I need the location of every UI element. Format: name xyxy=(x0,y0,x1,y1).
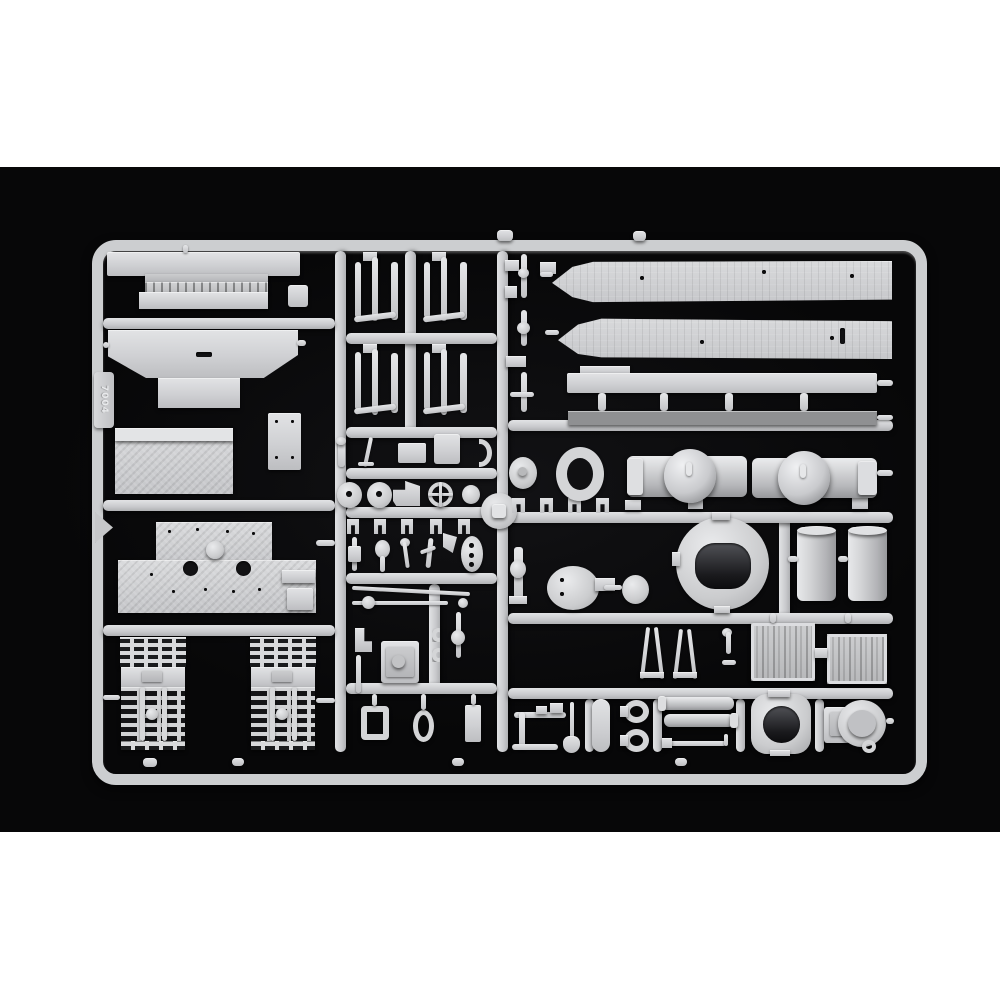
exhaust-pipe-1 xyxy=(660,697,734,710)
idler-dimple xyxy=(518,467,527,476)
loader-hatch-tab-top xyxy=(768,690,790,697)
deck-ledge xyxy=(282,570,315,583)
fuel-tank-1-stub xyxy=(788,556,798,562)
rail-h-mid-2 xyxy=(346,427,497,438)
pad-r-3 xyxy=(852,497,868,509)
rail-h-left-3 xyxy=(103,625,335,636)
tall-plate-stem xyxy=(471,694,476,705)
exhaust-pipe-2-cap xyxy=(730,713,738,728)
leaf-hole-2 xyxy=(469,553,474,558)
square-frame-stem xyxy=(372,694,377,706)
a-frame-2-base xyxy=(673,672,697,678)
ring-clamp-1-tab xyxy=(620,706,628,717)
rod-collar xyxy=(362,596,375,609)
grille-right-bar-2 xyxy=(292,687,297,741)
col-bit-1 xyxy=(505,260,519,271)
turret-ring-notch xyxy=(672,552,680,566)
skirt-post-2 xyxy=(660,393,668,411)
pad-r-1 xyxy=(625,500,641,510)
rail-h-mid-3 xyxy=(346,468,497,479)
tow-rod-end-2 xyxy=(724,734,728,746)
turret-ring-tab-bottom xyxy=(714,606,730,613)
barrel-ball-1-pin xyxy=(686,462,692,476)
barrel-collar-1 xyxy=(627,458,643,495)
rod-tip xyxy=(458,598,468,608)
pulley-hub xyxy=(492,504,506,518)
exhaust-pipe-2 xyxy=(664,714,734,727)
turret-ring-hole xyxy=(695,543,751,589)
deck-rivet-3 xyxy=(226,530,229,533)
barrel-muzzle-step xyxy=(858,461,877,495)
grille-right-bar-1 xyxy=(270,687,275,741)
hull-rear-hinge xyxy=(145,282,268,292)
bottom-rail-nub-3 xyxy=(452,758,464,766)
fuel-tank-2-stub xyxy=(838,556,848,562)
grille-left-latch xyxy=(142,671,162,682)
shovel-handle xyxy=(570,702,574,740)
bottom-rail-nub-4 xyxy=(675,758,687,766)
door-rivet-2 xyxy=(291,420,294,423)
loader-hatch-tab-bottom xyxy=(770,750,790,756)
shovel-blade xyxy=(563,736,580,753)
rail-h-right-3 xyxy=(508,613,893,624)
turret-ring-tab-top xyxy=(712,512,730,520)
long-rod-tl-1 xyxy=(355,262,361,318)
fender-left-dot-1 xyxy=(640,276,644,280)
wheel-hub-2-dot xyxy=(376,491,382,497)
rail-h-mid-4 xyxy=(346,507,497,518)
rail-v-2 xyxy=(405,251,416,438)
deck-rivet-5 xyxy=(150,573,153,576)
fuel-tank-2 xyxy=(848,527,887,601)
gate-stub-9 xyxy=(877,470,893,476)
fuel-tank-1-rim xyxy=(797,526,836,535)
cupola-inner-disc xyxy=(848,710,876,737)
large-ring xyxy=(556,447,604,501)
leaf-hole-1 xyxy=(469,543,474,548)
gate-stub-3 xyxy=(103,695,120,700)
long-rod-tm-1 xyxy=(424,262,430,318)
small-box-1 xyxy=(398,443,426,463)
fender-left xyxy=(552,261,892,303)
deck-rivet-6 xyxy=(172,590,175,593)
hull-rear-plate xyxy=(107,252,300,276)
small-hub xyxy=(462,485,480,504)
turnbuckle-body xyxy=(348,546,361,562)
fuel-tank-2-rim xyxy=(848,526,887,535)
gate-stub-7 xyxy=(877,380,893,386)
cast-box-top-band xyxy=(115,428,233,441)
barrel-ball-2 xyxy=(778,451,830,505)
antenna-tip xyxy=(336,437,346,445)
grille-left-bar-2 xyxy=(162,687,167,741)
col-bit-5 xyxy=(505,286,517,298)
gate-stub-5 xyxy=(540,272,553,277)
deck-rivet-2 xyxy=(196,528,199,531)
bottom-rail-nub-1 xyxy=(143,758,157,767)
gate-stub-10 xyxy=(886,718,894,724)
tall-plate xyxy=(465,705,481,742)
gate-stub-4 xyxy=(316,698,335,703)
oval-ring-stem xyxy=(421,694,426,710)
s-lever-foot xyxy=(358,462,374,466)
barrel-ball-1 xyxy=(664,449,716,503)
commander-hatch-disc xyxy=(547,566,599,610)
stowage-pad xyxy=(815,648,827,658)
periscope-bulge xyxy=(510,560,526,578)
hull-rear-flap xyxy=(139,292,268,309)
hook-part-2 xyxy=(726,632,731,654)
rail-v-9 xyxy=(815,699,824,752)
skirt-edge-strip xyxy=(568,411,877,425)
barrel-ball-2-pin xyxy=(800,464,806,478)
hull-rear-mid-strip xyxy=(145,274,268,282)
square-frame xyxy=(361,706,389,740)
top-rail-nub-2 xyxy=(633,231,646,241)
toolbox-latch xyxy=(392,655,405,668)
skirt-post-4 xyxy=(800,393,808,411)
gate-stub-6 xyxy=(545,330,559,335)
stowage-box-1-stem xyxy=(770,613,776,623)
bottom-rail-nub-2 xyxy=(232,758,244,766)
rail-h-mid-1 xyxy=(346,333,497,344)
skirt-post-3 xyxy=(725,393,733,411)
grille-left-bar-1 xyxy=(140,687,145,741)
sprue-layer: 7004 xyxy=(0,0,1000,1000)
stowage-box-2-stem xyxy=(845,613,851,623)
long-rod-tl-2 xyxy=(372,257,378,321)
valve-disc xyxy=(451,630,465,645)
fender-left-dot-3 xyxy=(850,274,854,278)
deck-hole-1 xyxy=(183,561,198,576)
bottle-neck xyxy=(380,556,385,572)
handwheel-spoke-v xyxy=(439,482,442,507)
skirt-support-rail xyxy=(567,373,877,393)
rail-h-mid-6 xyxy=(346,683,497,694)
capsule-part xyxy=(592,699,610,752)
long-rod-tm-2 xyxy=(441,257,447,321)
door-rivet-3 xyxy=(275,456,278,459)
gate-stub-8 xyxy=(877,415,893,420)
fender-right-dot-1 xyxy=(700,340,704,344)
rail-h-mid-5 xyxy=(346,573,497,584)
small-hatch-disc xyxy=(622,575,649,604)
col-bit-10 xyxy=(510,392,534,397)
tow-bar-bottom xyxy=(512,744,558,750)
skirt-post-1 xyxy=(598,393,606,411)
fender-right-slot xyxy=(840,328,845,344)
gate-stub-12 xyxy=(604,585,622,590)
exhaust-pipe-1-cap xyxy=(658,696,666,711)
ring-clamp-2-tab xyxy=(620,735,628,746)
hatch-dot-2 xyxy=(560,592,564,596)
grille-left-foot xyxy=(121,741,185,750)
rail-v-4 xyxy=(779,512,790,624)
hook-part-3 xyxy=(722,660,736,665)
cupola-ring-dangle xyxy=(862,740,876,753)
tow-rod xyxy=(670,741,726,746)
glacis-tab-plate xyxy=(158,378,240,408)
rail-h-left-1 xyxy=(103,318,335,329)
door-hatch-plate xyxy=(268,413,301,470)
deck-dome xyxy=(206,541,224,559)
loader-hatch-hole xyxy=(763,706,800,743)
col-bit-8 xyxy=(506,356,526,367)
fuel-tank-1 xyxy=(797,527,836,601)
gate-stub-11 xyxy=(316,540,335,546)
gate-stub-2 xyxy=(297,340,306,346)
small-box-2 xyxy=(434,434,460,464)
deck-rivet-8 xyxy=(232,590,235,593)
fender-left-dot-2 xyxy=(762,270,766,274)
hull-rear-pin xyxy=(183,245,188,253)
door-rivet-1 xyxy=(275,420,278,423)
grille-right-slats xyxy=(250,637,316,667)
oval-ring xyxy=(413,710,434,742)
deck-pad xyxy=(287,588,313,610)
deck-rivet-7 xyxy=(204,588,207,591)
tow-rod-end-1 xyxy=(662,738,672,748)
long-rod-bl-1 xyxy=(355,352,361,410)
hinge-end-bit xyxy=(288,285,308,307)
screenshot-canvas: 7004 xyxy=(0,0,1000,1000)
col-bit-3 xyxy=(518,268,529,278)
leaf-hole-3 xyxy=(469,562,474,567)
deck-rivet-4 xyxy=(252,532,255,535)
grille-left-knob xyxy=(146,708,158,720)
long-rod-bm-1 xyxy=(424,352,430,410)
rail-h-left-2 xyxy=(103,500,335,511)
a-frame-1-base xyxy=(640,672,664,678)
deck-rivet-9 xyxy=(258,588,261,591)
periscope-foot xyxy=(509,596,527,604)
fender-right-dot-2 xyxy=(830,336,834,340)
thin-post xyxy=(356,655,361,693)
top-rail-nub-1 xyxy=(497,230,513,241)
deck-rivet-1 xyxy=(168,530,171,533)
col-bit-7 xyxy=(517,322,530,334)
wheel-hub-1-dot xyxy=(346,491,352,497)
tow-fitting-2 xyxy=(550,703,563,713)
grille-right-knob xyxy=(276,708,288,720)
stowage-box-1-frame xyxy=(751,623,815,681)
glacis-slot xyxy=(196,352,212,357)
door-rivet-4 xyxy=(291,456,294,459)
grille-left-slats xyxy=(120,637,186,667)
hatch-dot-1 xyxy=(560,578,564,582)
grille-right-foot xyxy=(251,741,315,750)
deck-hole-2 xyxy=(236,561,251,576)
gate-stub-1 xyxy=(103,342,109,348)
stowage-box-2-frame xyxy=(827,634,887,684)
tow-fitting-1 xyxy=(536,706,547,714)
sprue-number-tag: 7004 xyxy=(94,372,114,428)
grille-right-latch xyxy=(272,671,292,682)
